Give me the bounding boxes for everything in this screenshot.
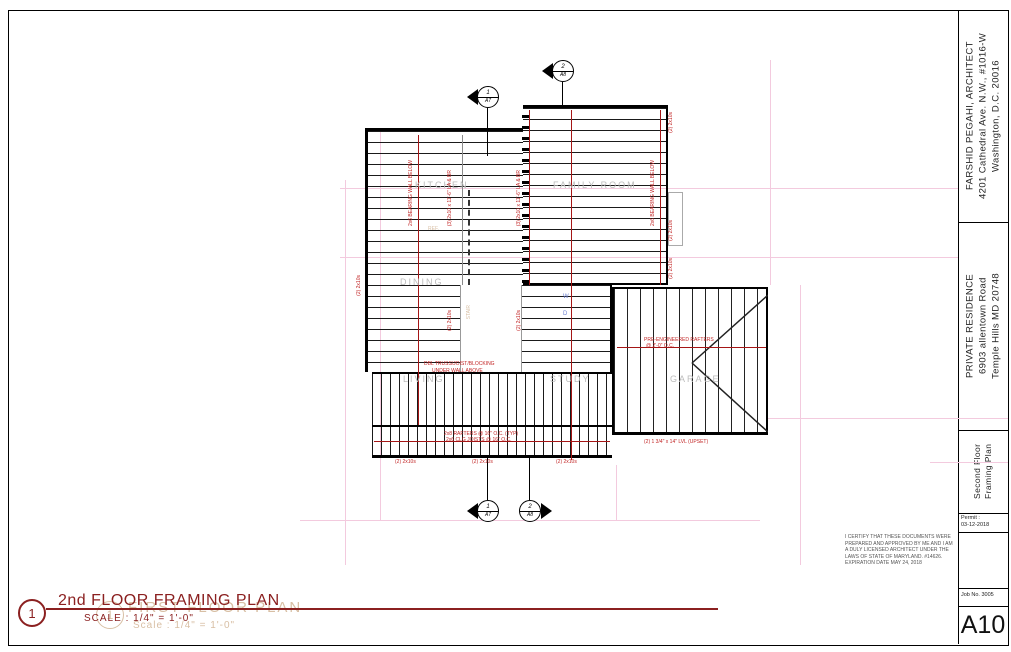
beam-line	[660, 110, 661, 285]
job-number: Job No. 3005	[961, 592, 994, 598]
permit-date: 03-12-2018	[961, 522, 989, 529]
stair-wall	[462, 135, 463, 285]
project-info: PRIVATE RESIDENCE 6903 allentown Road Te…	[959, 223, 1007, 429]
construction-line	[770, 60, 771, 285]
section-sheet: A8	[553, 72, 573, 79]
detail-number: 1	[28, 606, 35, 621]
section-marker-arrow	[541, 503, 552, 519]
annotation: UNDER WALL ABOVE	[432, 369, 483, 374]
annotation: @ 2'-0" O.C.	[646, 344, 674, 349]
drawing-sheet: FARSHID PEGAHI, ARCHITECT 4201 Cathedral…	[0, 0, 1011, 652]
section-sheet: A8	[520, 512, 540, 519]
annotation: (3) 2x10 x 11'-6" LA & BR	[517, 170, 522, 226]
section-sheet: A7	[478, 98, 498, 105]
annotation: 2x6 CLG JOISTS @ 16" O.C.	[446, 438, 511, 443]
room-label-study: STUDY	[550, 374, 591, 384]
permit-info: Permit : 03-12-2018	[961, 515, 989, 529]
section-number: 2	[553, 63, 573, 72]
drawing-scale: SCALE : 1/4" = 1'-0"	[84, 613, 194, 624]
stair-void	[460, 285, 522, 372]
architect-address2: Washington, D.C. 20016	[990, 33, 1003, 199]
washer-label: W	[563, 294, 569, 300]
sheet-title-line2: Framing Plan	[983, 444, 994, 499]
beam-line	[571, 110, 572, 460]
deck-mid-wall	[372, 425, 612, 427]
annotation: (2) 2x10s	[357, 275, 362, 296]
annotation: (2) 2x10s	[669, 220, 674, 241]
section-stem	[562, 82, 563, 108]
dashed-beam	[468, 190, 470, 285]
room-label-family-room: FAMILY ROOM	[553, 180, 637, 190]
annotation: (2) 2x10s	[556, 460, 577, 465]
certification-line: I CERTIFY THAT THESE DOCUMENTS WERE	[845, 534, 963, 541]
section-number: 1	[478, 89, 498, 98]
dryer-label: D	[563, 311, 567, 317]
sheet-number: A10	[958, 607, 1008, 644]
permit-label: Permit :	[961, 515, 989, 522]
section-marker-2-bottom: 2 A8	[519, 500, 541, 522]
annotation: (2) 2x10s	[669, 258, 674, 279]
construction-line	[768, 418, 1008, 419]
architect-info: FARSHID PEGAHI, ARCHITECT 4201 Cathedral…	[959, 11, 1007, 221]
drawing-title: 2nd FLOOR FRAMING PLAN	[58, 592, 280, 610]
room-label-dining: DINING	[400, 277, 444, 287]
title-block-rule	[958, 532, 1008, 533]
project-address2: Temple Hills MD 20748	[990, 273, 1003, 379]
sheet-title: Second Floor Framing Plan	[959, 431, 1007, 512]
certification-line: A DULY LICENSED ARCHITECT UNDER THE	[845, 547, 963, 554]
construction-line	[800, 285, 801, 565]
architect-name: FARSHID PEGAHI, ARCHITECT	[964, 33, 977, 199]
annotation: (2) 1 3/4" x 14" LVL (UPSET)	[644, 440, 708, 445]
joist-field-deck	[372, 372, 612, 458]
annotation: (2) 2x10s	[669, 112, 674, 133]
certification-line: EXPIRATION DATE MAY 24, 2018	[845, 560, 963, 567]
room-label-living: LIVING	[403, 374, 445, 384]
construction-line	[616, 465, 617, 520]
annotation: (2) 2x10s	[472, 460, 493, 465]
garage-hip-lines	[612, 287, 768, 435]
construction-line	[345, 180, 346, 565]
beam-line	[529, 110, 530, 285]
ghost-label-ref: REF.	[428, 226, 439, 232]
joist-field-family-room	[523, 105, 668, 285]
section-stem	[487, 108, 488, 156]
joist-hanger-ticks	[522, 115, 529, 285]
section-number: 2	[520, 503, 540, 512]
project-name: PRIVATE RESIDENCE	[964, 273, 977, 379]
construction-line	[930, 462, 1008, 463]
title-block-rule	[958, 513, 1008, 514]
beam-line	[617, 347, 766, 348]
room-label-garage: GARAGE	[670, 374, 721, 384]
annotation: 2x6 BEARING WALL BELOW	[409, 160, 414, 226]
room-label-kitchen: KITCHEN	[415, 180, 469, 190]
annotation: (2) 2x10s	[395, 460, 416, 465]
ghost-label-stair: STAIR	[466, 305, 472, 319]
annotation: (2) 2x10s	[517, 310, 522, 331]
section-stem	[529, 458, 530, 500]
section-marker-1-bottom: 1 A7	[477, 500, 499, 522]
section-number: 1	[478, 503, 498, 512]
annotation: (3) 2x10 x 11'-6" LA & BR	[448, 170, 453, 226]
detail-circle: 1	[18, 599, 46, 627]
section-sheet: A7	[478, 512, 498, 519]
architect-address1: 4201 Cathedral Ave. N.W., #1016-W	[977, 33, 990, 199]
annotation: 2x6 BEARING WALL BELOW	[651, 160, 656, 226]
annotation: (2) 2x10s	[448, 310, 453, 331]
section-marker-2-top: 2 A8	[552, 60, 574, 82]
certification-note: I CERTIFY THAT THESE DOCUMENTS WERE PREP…	[845, 534, 963, 567]
section-marker-1-top: 1 A7	[477, 86, 499, 108]
annotation: DBL TRUSS/JOIST/BLOCKING	[424, 362, 495, 367]
project-address1: 6903 allentown Road	[977, 273, 990, 379]
sheet-title-line1: Second Floor	[972, 444, 983, 499]
title-block-rule	[958, 588, 1008, 589]
